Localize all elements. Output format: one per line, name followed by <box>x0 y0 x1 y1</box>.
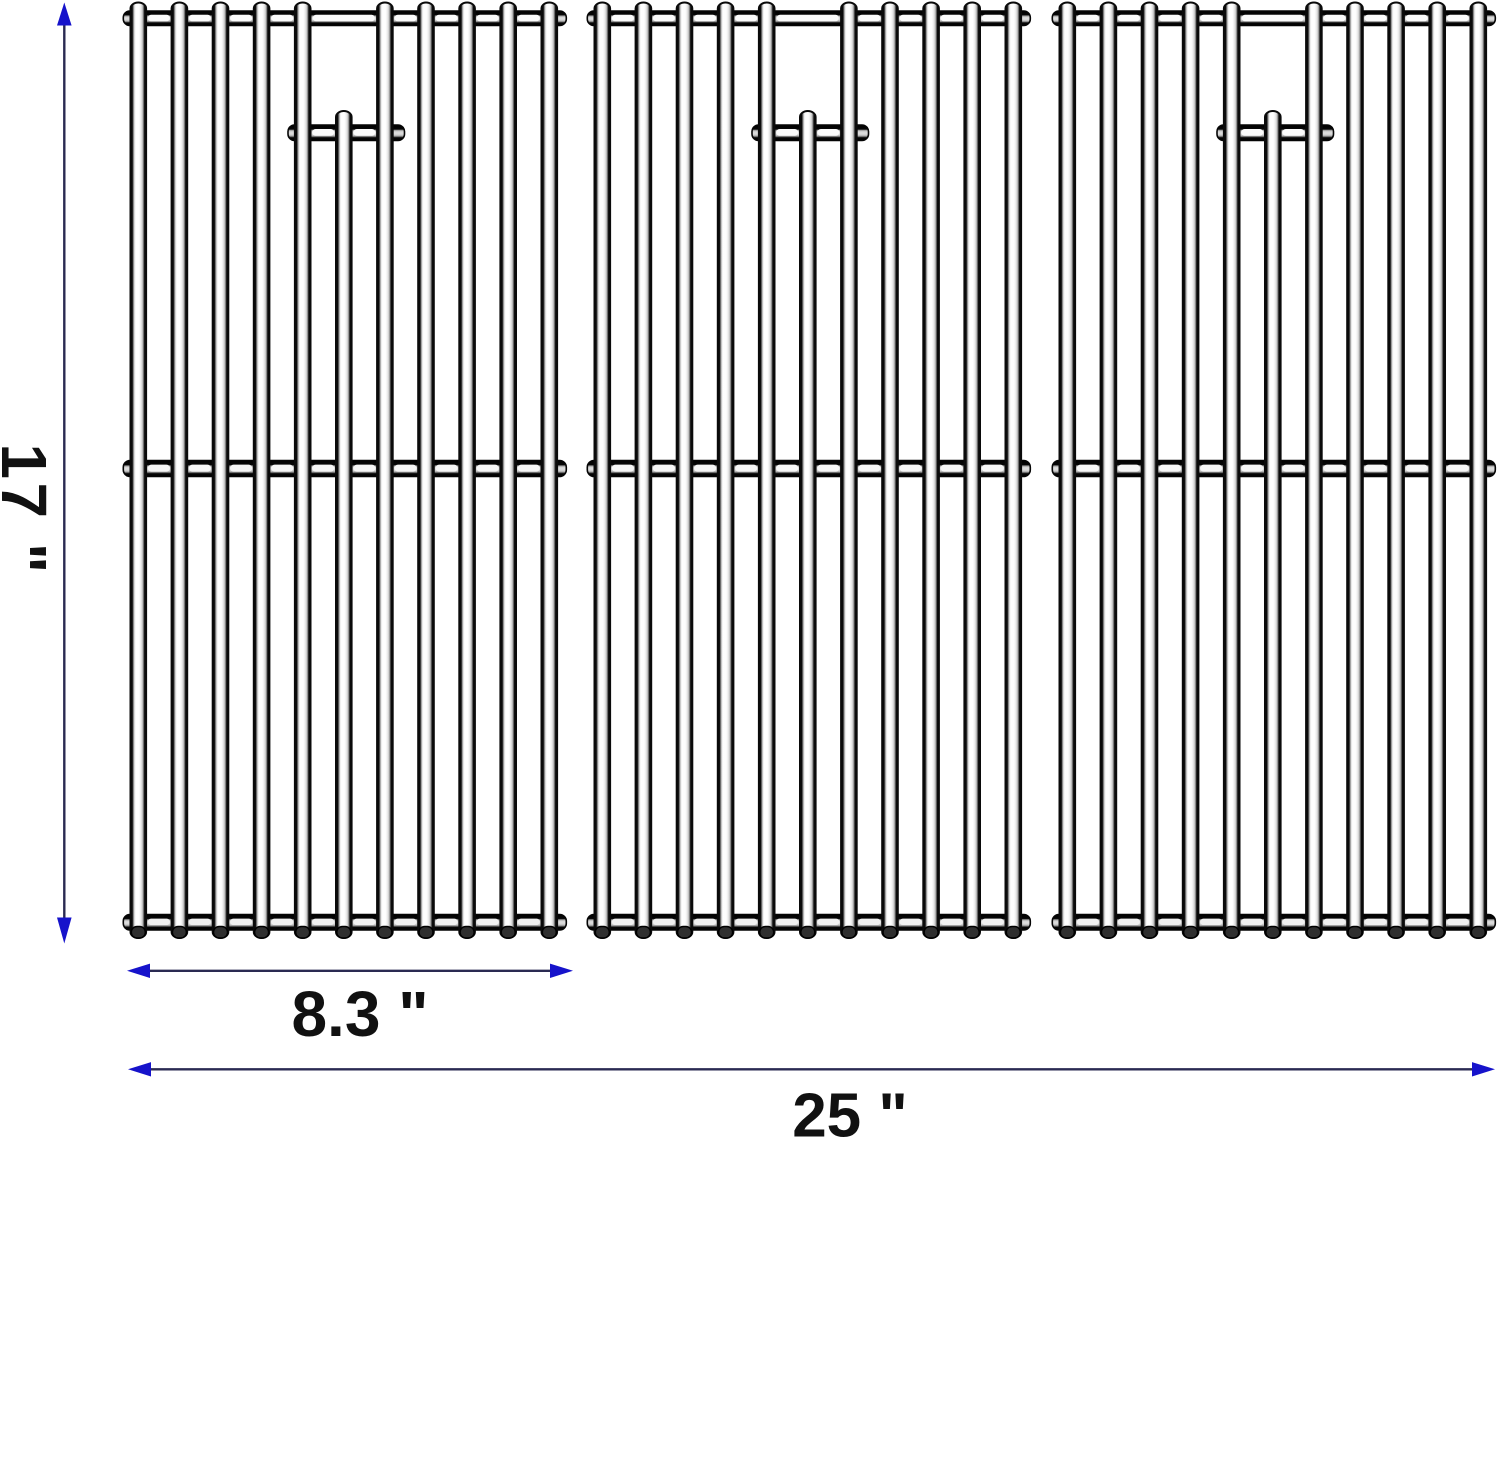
svg-text:25 ": 25 " <box>792 1082 908 1151</box>
svg-text:17 ": 17 " <box>0 443 60 576</box>
svg-text:8.3 ": 8.3 " <box>291 978 428 1050</box>
